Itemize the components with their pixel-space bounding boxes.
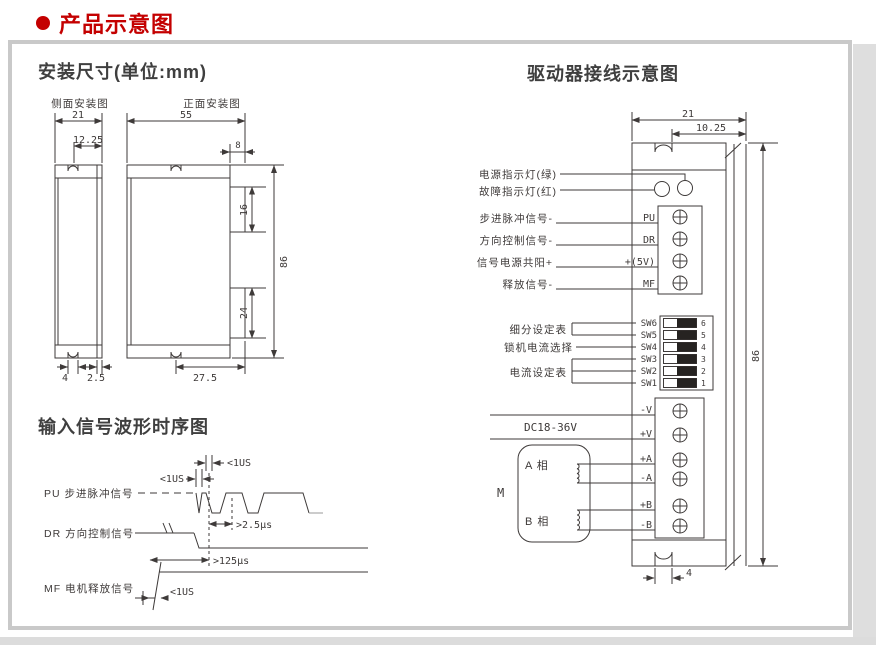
pin-pos-b: +B [640,500,652,511]
side-view-drawing: 侧面安装图 21 12.25 4 2.5 [51,97,112,384]
motor-symbol: A 相 B 相 M [497,445,590,542]
waveform-diagram: PU 步进脉冲信号 <1US <1US >2.5μs DR 方向控制信号 [44,455,368,610]
mf-signal-label: MF 电机释放信号 [44,582,134,595]
pu-dr-setup-annotation: >2.5μs [236,520,272,531]
phase-a-coil-icon [577,464,579,483]
sw5-num: 5 [701,331,706,340]
phase-b-coil-icon [577,510,580,530]
dim-driver-notch-width: 4 [686,568,692,579]
dim-front-tab-upper: 16 [239,204,250,216]
power-led-label: 电源指示灯(绿) [479,168,557,181]
pin-neg-b: -B [640,520,652,531]
mf-rise-time-annotation: <1US [170,587,194,598]
sw1-num: 1 [701,379,706,388]
bottom-divider [0,637,876,645]
pin-mf: MF [643,279,655,290]
mf-waveform: MF 电机释放信号 <1US [44,562,368,610]
power-terminal-block: -V +V +A -A +B -B DC18-36V [490,398,704,538]
pu-rise-time-annotation: <1US [160,474,184,485]
dim-front-height: 86 [279,256,290,268]
dim-front-tab-width: 8 [235,141,240,151]
pu-signal-label: PU 步进脉冲信号 [44,487,134,500]
common-anode-label: 信号电源共阳+ [477,256,553,269]
dim-side-notch-width: 4 [62,373,68,384]
dr-waveform: DR 方向控制信号 >125μs [44,523,368,567]
dim-driver-notch-offset: 10.25 [696,123,726,134]
pin-neg-a: -A [640,473,652,484]
technical-drawing-canvas: 侧面安装图 21 12.25 4 2.5 正面安装图 55 8 [0,0,876,645]
dim-driver-height: 86 [751,350,762,362]
right-divider [853,44,876,637]
dr-signal-label: DR 方向控制信号 [44,527,134,540]
led-indicators: 电源指示灯(绿) 故障指示灯(红) [479,168,693,198]
current-table-label: 电流设定表 [510,366,568,379]
fault-led-icon [655,182,670,197]
subdivision-table-label: 细分设定表 [510,323,568,336]
dip-switch-block: SW6 6 SW5 5 SW4 4 SW3 3 SW2 2 SW1 1 细 [504,316,713,390]
pulse-signal-label: 步进脉冲信号- [480,212,554,225]
power-led-icon [678,181,693,196]
pin-neg-v: -V [640,405,652,416]
sw5-label: SW5 [641,331,657,341]
sw2-num: 2 [701,367,706,376]
lock-current-label: 锁机电流选择 [504,341,573,354]
dim-front-notch-offset: 27.5 [193,373,217,384]
dim-front-width: 55 [180,110,192,121]
release-signal-label: 释放信号- [503,278,554,291]
dim-side-width: 21 [72,110,84,121]
side-view-label: 侧面安装图 [51,97,109,110]
sw6-num: 6 [701,319,706,328]
dim-front-tab-lower: 24 [239,307,250,319]
motor-label: M [497,486,504,500]
pin-dr: DR [643,235,656,246]
dim-driver-width: 21 [682,109,694,120]
pin-pos-v: +V [640,429,652,440]
sw4-label: SW4 [641,343,657,353]
driver-top-dimensions: 21 10.25 [632,109,746,142]
direction-signal-label: 方向控制信号- [480,234,554,247]
front-view-drawing: 正面安装图 55 8 16 24 86 27.5 [127,97,290,384]
sw4-num: 4 [701,343,706,352]
driver-height-dimension: 86 [748,143,778,566]
dim-side-notch-offset: 12.25 [73,135,103,146]
front-view-label: 正面安装图 [183,97,241,110]
pin-pu: PU [643,213,655,224]
signal-terminal-block: PU 步进脉冲信号- DR 方向控制信号- +(5V) 信号电源共阳+ MF 释… [477,206,702,294]
dim-side-plate-thickness: 2.5 [87,373,105,384]
sw1-label: SW1 [641,379,657,389]
phase-a-label: A 相 [525,459,549,472]
fault-led-label: 故障指示灯(红) [479,185,557,198]
sw3-label: SW3 [641,355,657,365]
pin-pos-a: +A [640,454,652,465]
driver-diagram: 21 10.25 86 电源指示灯(绿) 故障指示灯(红) [477,109,778,584]
sw6-label: SW6 [641,319,657,329]
sw2-label: SW2 [641,367,657,377]
phase-b-label: B 相 [525,515,549,528]
sw3-num: 3 [701,355,706,364]
pu-waveform: PU 步进脉冲信号 <1US <1US >2.5μs [44,455,323,566]
dr-hold-annotation: >125μs [213,556,249,567]
pin-5v: +(5V) [625,257,655,268]
pu-fall-time-annotation: <1US [227,458,251,469]
driver-bottom-dimension: 4 [643,568,692,584]
supply-voltage-label: DC18-36V [524,421,577,434]
